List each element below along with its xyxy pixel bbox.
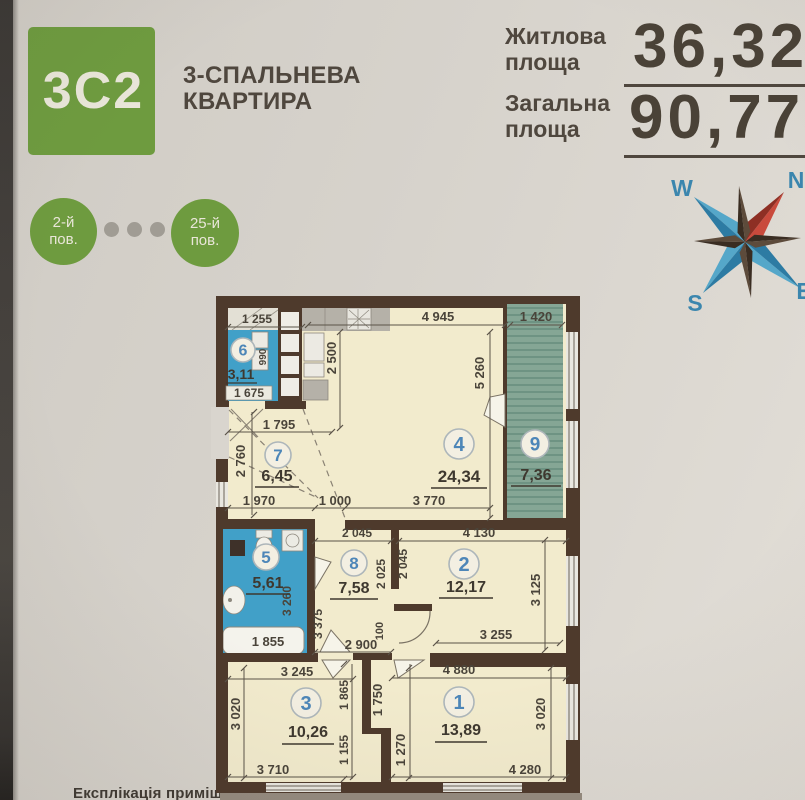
svg-text:1 855: 1 855 <box>252 634 285 649</box>
svg-text:1 865: 1 865 <box>337 680 351 710</box>
svg-text:9: 9 <box>530 435 541 456</box>
svg-text:3 375: 3 375 <box>311 609 325 639</box>
svg-text:4 280: 4 280 <box>509 762 542 777</box>
svg-text:2 500: 2 500 <box>324 342 339 375</box>
svg-text:24,34: 24,34 <box>438 467 481 486</box>
svg-text:100: 100 <box>374 622 386 640</box>
svg-text:1 675: 1 675 <box>234 386 264 400</box>
svg-text:5 260: 5 260 <box>472 357 487 390</box>
svg-text:1 795: 1 795 <box>263 417 296 432</box>
svg-text:6,45: 6,45 <box>261 468 292 485</box>
svg-text:2: 2 <box>458 554 469 576</box>
svg-text:2 045: 2 045 <box>396 549 410 579</box>
svg-text:E: E <box>796 278 805 304</box>
svg-text:3: 3 <box>300 693 311 715</box>
svg-text:6: 6 <box>239 343 248 360</box>
svg-text:1 000: 1 000 <box>319 493 352 508</box>
svg-text:10,26: 10,26 <box>288 724 328 741</box>
svg-text:2 025: 2 025 <box>374 559 388 589</box>
svg-text:1 155: 1 155 <box>337 735 351 765</box>
svg-text:S: S <box>687 290 702 316</box>
svg-text:13,89: 13,89 <box>441 722 481 739</box>
svg-text:12,17: 12,17 <box>446 579 486 596</box>
svg-text:7: 7 <box>273 446 282 465</box>
svg-text:8: 8 <box>349 554 358 573</box>
svg-text:3 255: 3 255 <box>480 627 513 642</box>
svg-text:7,36: 7,36 <box>520 467 551 484</box>
svg-text:4 130: 4 130 <box>463 525 496 540</box>
svg-text:3 770: 3 770 <box>413 493 446 508</box>
svg-text:1 420: 1 420 <box>520 309 553 324</box>
svg-text:3 125: 3 125 <box>528 574 543 607</box>
svg-text:2 900: 2 900 <box>345 637 378 652</box>
svg-text:5,61: 5,61 <box>252 575 283 592</box>
svg-text:2 045: 2 045 <box>342 526 372 540</box>
svg-text:4 945: 4 945 <box>422 309 455 324</box>
svg-text:1 750: 1 750 <box>370 684 385 717</box>
svg-text:3 020: 3 020 <box>228 698 243 731</box>
svg-text:2 760: 2 760 <box>233 445 248 478</box>
svg-text:5: 5 <box>261 548 270 567</box>
svg-text:990: 990 <box>258 348 269 365</box>
svg-text:3,11: 3,11 <box>228 366 255 382</box>
svg-text:4 880: 4 880 <box>443 662 476 677</box>
svg-text:W: W <box>671 175 693 201</box>
svg-text:1 255: 1 255 <box>242 312 272 326</box>
svg-text:4: 4 <box>453 434 465 456</box>
svg-text:7,58: 7,58 <box>338 580 369 597</box>
svg-text:1: 1 <box>453 692 464 714</box>
svg-text:1 970: 1 970 <box>243 493 276 508</box>
svg-text:3 710: 3 710 <box>257 762 290 777</box>
svg-text:1 270: 1 270 <box>393 734 408 767</box>
svg-text:3 020: 3 020 <box>533 698 548 731</box>
svg-text:N: N <box>788 167 805 193</box>
svg-text:3 245: 3 245 <box>281 664 314 679</box>
